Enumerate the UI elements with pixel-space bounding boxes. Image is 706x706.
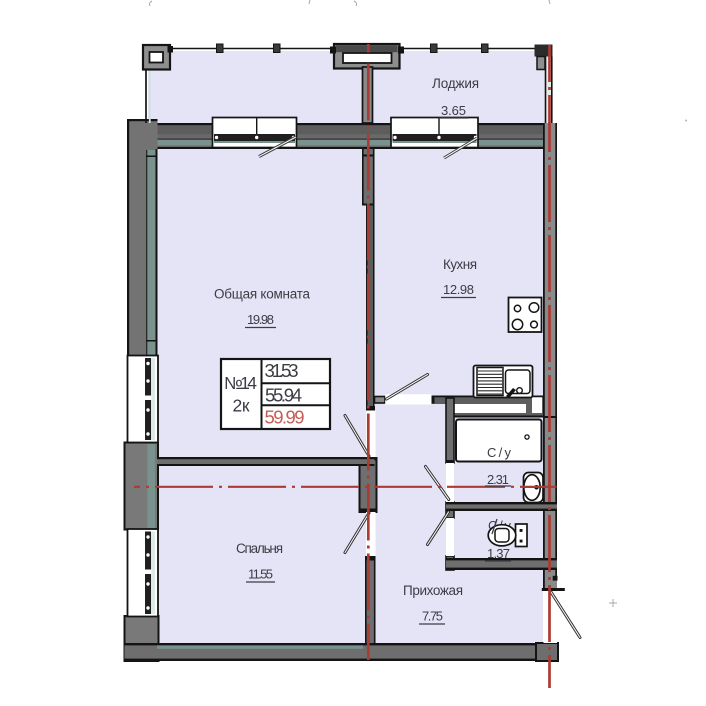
svg-text:2.31: 2.31: [487, 472, 509, 487]
svg-text:С/у: С/у: [487, 445, 512, 460]
svg-text:19.98: 19.98: [247, 312, 274, 327]
svg-text:Прихожая: Прихожая: [403, 583, 463, 598]
svg-text:55.94: 55.94: [265, 385, 302, 406]
svg-text:59.99: 59.99: [265, 407, 305, 428]
svg-text:7.75: 7.75: [422, 609, 443, 624]
svg-text:Лоджия: Лоджия: [432, 76, 479, 91]
svg-text:Кухня: Кухня: [443, 257, 477, 272]
svg-text:Спальня: Спальня: [236, 541, 283, 556]
svg-text:1.37: 1.37: [487, 546, 510, 561]
svg-text:12.98: 12.98: [443, 282, 474, 297]
svg-text:31.53: 31.53: [265, 360, 299, 381]
svg-text:2к: 2к: [233, 396, 250, 416]
svg-text:Общая комната: Общая комната: [214, 287, 310, 302]
svg-text:№14: №14: [224, 373, 257, 393]
svg-text:3.65: 3.65: [441, 103, 466, 118]
svg-text:11.55: 11.55: [248, 567, 273, 582]
